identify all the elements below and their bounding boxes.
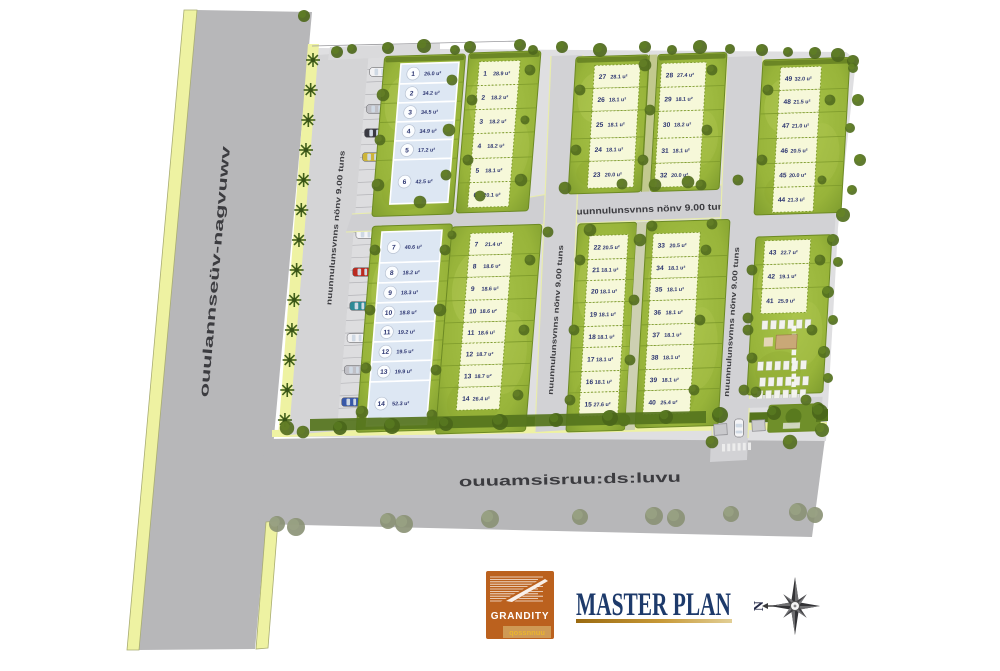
- svg-text:19: 19: [589, 311, 597, 318]
- svg-text:18.1 u²: 18.1 u²: [598, 312, 616, 319]
- svg-text:20.5 u²: 20.5 u²: [790, 148, 808, 155]
- svg-text:20.5 u²: 20.5 u²: [669, 243, 687, 250]
- svg-text:19.2 u²: 19.2 u²: [398, 329, 416, 336]
- svg-text:14: 14: [377, 401, 385, 408]
- svg-text:21.5 u²: 21.5 u²: [793, 99, 811, 106]
- svg-text:45: 45: [779, 172, 787, 179]
- svg-text:18.1 u²: 18.1 u²: [661, 377, 679, 384]
- svg-text:27: 27: [599, 74, 607, 81]
- svg-text:33: 33: [657, 243, 665, 250]
- svg-text:N: N: [752, 601, 767, 611]
- svg-text:34.5 u²: 34.5 u²: [421, 109, 439, 116]
- svg-text:18.1 u²: 18.1 u²: [485, 168, 503, 175]
- svg-text:18.2 u²: 18.2 u²: [491, 95, 509, 102]
- svg-text:18.2 u²: 18.2 u²: [674, 122, 692, 129]
- svg-text:21.3 u²: 21.3 u²: [787, 197, 805, 204]
- svg-text:27.4 u²: 27.4 u²: [677, 73, 695, 80]
- svg-text:11: 11: [383, 329, 391, 336]
- svg-text:18.1 u²: 18.1 u²: [668, 265, 686, 272]
- svg-text:18.2 u²: 18.2 u²: [487, 143, 505, 150]
- svg-text:18.2 u²: 18.2 u²: [489, 119, 507, 126]
- svg-text:11: 11: [467, 330, 475, 337]
- svg-text:16: 16: [586, 379, 594, 386]
- svg-text:17.2 u²: 17.2 u²: [418, 147, 436, 154]
- svg-text:38: 38: [651, 355, 659, 362]
- svg-text:40.6 u²: 40.6 u²: [404, 244, 422, 251]
- svg-text:48: 48: [783, 99, 791, 106]
- svg-text:26.4 u²: 26.4 u²: [472, 396, 490, 403]
- svg-text:22.7 u²: 22.7 u²: [780, 250, 798, 257]
- svg-text:12: 12: [465, 351, 473, 358]
- svg-text:18.1 u²: 18.1 u²: [675, 97, 693, 104]
- svg-text:18.6 u²: 18.6 u²: [483, 264, 501, 271]
- svg-text:44: 44: [778, 197, 786, 204]
- svg-text:18.1 u²: 18.1 u²: [600, 289, 618, 296]
- svg-text:43: 43: [769, 250, 777, 257]
- svg-text:46: 46: [780, 148, 788, 155]
- svg-text:27.6 u²: 27.6 u²: [593, 402, 611, 409]
- svg-text:12: 12: [381, 349, 389, 356]
- svg-text:36: 36: [653, 310, 661, 317]
- svg-text:34.2 u²: 34.2 u²: [422, 90, 440, 97]
- svg-text:39: 39: [650, 377, 658, 384]
- svg-text:18.1 u²: 18.1 u²: [597, 334, 615, 341]
- svg-text:10: 10: [469, 308, 477, 315]
- svg-text:18.1 u²: 18.1 u²: [607, 122, 625, 129]
- svg-text:18.1 u²: 18.1 u²: [664, 332, 682, 339]
- svg-text:18.1 u²: 18.1 u²: [667, 287, 685, 294]
- svg-text:15: 15: [584, 401, 592, 408]
- svg-text:20.0 u²: 20.0 u²: [789, 173, 807, 180]
- svg-text:40: 40: [648, 400, 656, 407]
- svg-text:18.1 u²: 18.1 u²: [596, 357, 614, 364]
- svg-text:21: 21: [592, 267, 600, 274]
- svg-text:18.6 u²: 18.6 u²: [478, 330, 496, 337]
- svg-text:32.0 u²: 32.0 u²: [794, 76, 812, 83]
- svg-text:18: 18: [588, 334, 596, 341]
- svg-text:22: 22: [593, 244, 601, 251]
- svg-text:19.1 u²: 19.1 u²: [779, 274, 797, 281]
- svg-text:24: 24: [594, 147, 602, 154]
- svg-text:19.9 u²: 19.9 u²: [394, 369, 412, 376]
- svg-text:32: 32: [660, 172, 668, 179]
- svg-text:47: 47: [782, 123, 790, 130]
- svg-text:21.4 u²: 21.4 u²: [485, 242, 503, 249]
- svg-text:20.0 u²: 20.0 u²: [604, 172, 622, 179]
- svg-text:20: 20: [591, 288, 599, 295]
- svg-text:42.5 u²: 42.5 u²: [415, 179, 433, 186]
- svg-text:28: 28: [666, 72, 674, 79]
- svg-text:25.4 u²: 25.4 u²: [660, 400, 678, 407]
- svg-text:GRANDITY: GRANDITY: [491, 611, 550, 622]
- svg-text:21.0 u²: 21.0 u²: [792, 123, 810, 130]
- svg-text:49: 49: [785, 76, 793, 83]
- svg-text:20.1 u²: 20.1 u²: [483, 192, 501, 199]
- svg-text:29: 29: [664, 96, 672, 103]
- svg-text:23: 23: [593, 172, 601, 179]
- svg-text:26.0 u²: 26.0 u²: [424, 71, 442, 78]
- svg-text:30: 30: [663, 122, 671, 129]
- svg-text:37: 37: [652, 332, 660, 339]
- svg-text:26: 26: [597, 97, 605, 104]
- svg-text:18.1 u²: 18.1 u²: [606, 147, 624, 154]
- svg-text:18.1 u²: 18.1 u²: [665, 310, 683, 317]
- svg-text:18.7 u²: 18.7 u²: [474, 374, 492, 381]
- svg-text:18.8 u²: 18.8 u²: [399, 310, 417, 317]
- svg-text:28.1 u²: 28.1 u²: [610, 74, 628, 81]
- svg-text:18.6 u²: 18.6 u²: [481, 286, 499, 293]
- svg-text:18.1 u²: 18.1 u²: [609, 97, 627, 104]
- svg-text:18.2 u²: 18.2 u²: [402, 270, 420, 277]
- svg-text:13: 13: [464, 373, 472, 380]
- svg-text:18.1 u²: 18.1 u²: [601, 267, 619, 274]
- svg-text:18.1 u²: 18.1 u²: [595, 379, 613, 386]
- svg-text:41: 41: [766, 298, 774, 305]
- svg-text:14: 14: [462, 396, 470, 403]
- svg-text:19.5 u²: 19.5 u²: [396, 349, 414, 356]
- svg-text:13: 13: [380, 369, 388, 376]
- svg-text:10: 10: [385, 310, 393, 317]
- svg-text:34: 34: [656, 265, 664, 272]
- svg-text:34.9 u²: 34.9 u²: [419, 128, 437, 135]
- svg-text:17: 17: [587, 356, 595, 363]
- svg-text:52.3 u²: 52.3 u²: [392, 401, 410, 408]
- svg-text:18.6 u²: 18.6 u²: [479, 309, 497, 316]
- svg-text:25: 25: [596, 122, 604, 129]
- svg-text:18.3 u²: 18.3 u²: [401, 290, 419, 297]
- svg-text:18.7 u²: 18.7 u²: [476, 352, 494, 359]
- svg-text:18.1 u²: 18.1 u²: [672, 148, 690, 155]
- svg-text:18.1 u²: 18.1 u²: [663, 355, 681, 362]
- svg-text:28.9 u²: 28.9 u²: [493, 71, 511, 78]
- svg-text:35: 35: [655, 287, 663, 294]
- svg-text:42: 42: [767, 274, 775, 281]
- svg-text:MASTER PLAN: MASTER PLAN: [576, 587, 731, 623]
- svg-text:qossnnuu: qossnnuu: [509, 628, 545, 637]
- svg-text:20.5 u²: 20.5 u²: [602, 245, 620, 252]
- svg-text:31: 31: [661, 148, 669, 155]
- svg-text:25.9 u²: 25.9 u²: [778, 298, 796, 305]
